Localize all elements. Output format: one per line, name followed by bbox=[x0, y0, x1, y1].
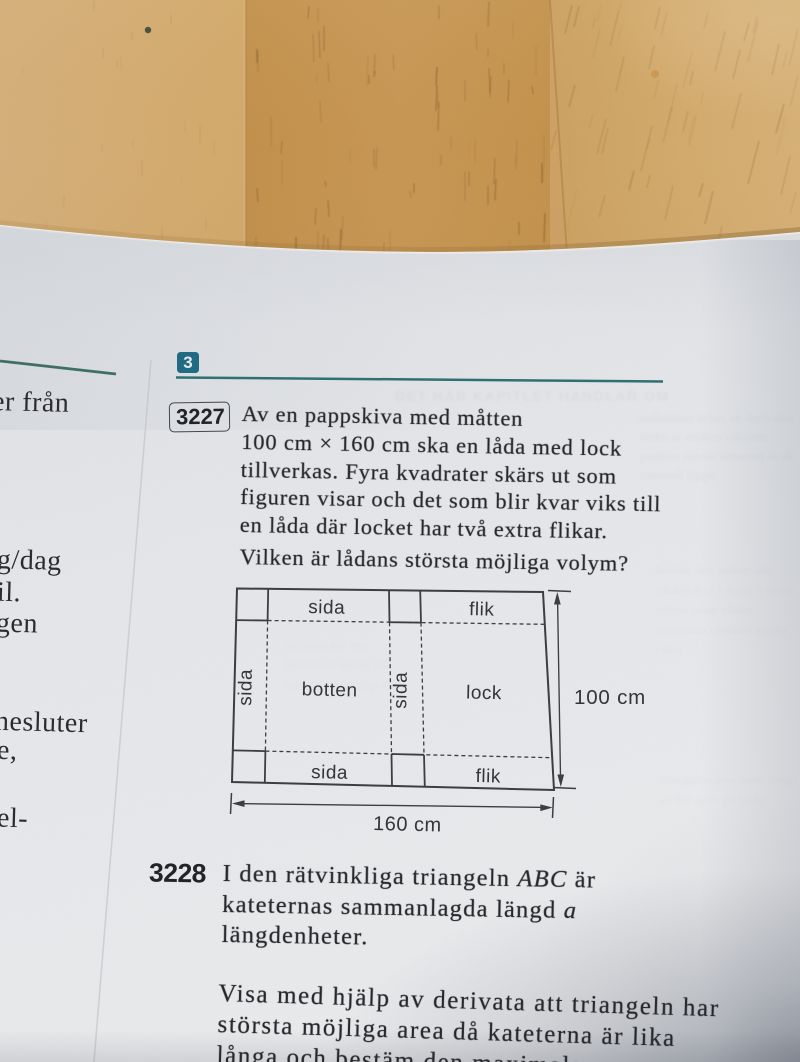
svg-text:160 cm: 160 cm bbox=[373, 813, 442, 836]
svg-text:lock: lock bbox=[466, 683, 502, 705]
svg-text:sida: sida bbox=[311, 762, 348, 784]
svg-text:flik: flik bbox=[475, 766, 501, 788]
svg-text:sida: sida bbox=[390, 672, 412, 709]
svg-text:flik: flik bbox=[469, 599, 495, 621]
svg-text:100 cm: 100 cm bbox=[574, 686, 646, 709]
svg-text:sida: sida bbox=[308, 597, 345, 619]
svg-text:botten: botten bbox=[301, 679, 357, 701]
svg-text:sida: sida bbox=[235, 669, 257, 706]
